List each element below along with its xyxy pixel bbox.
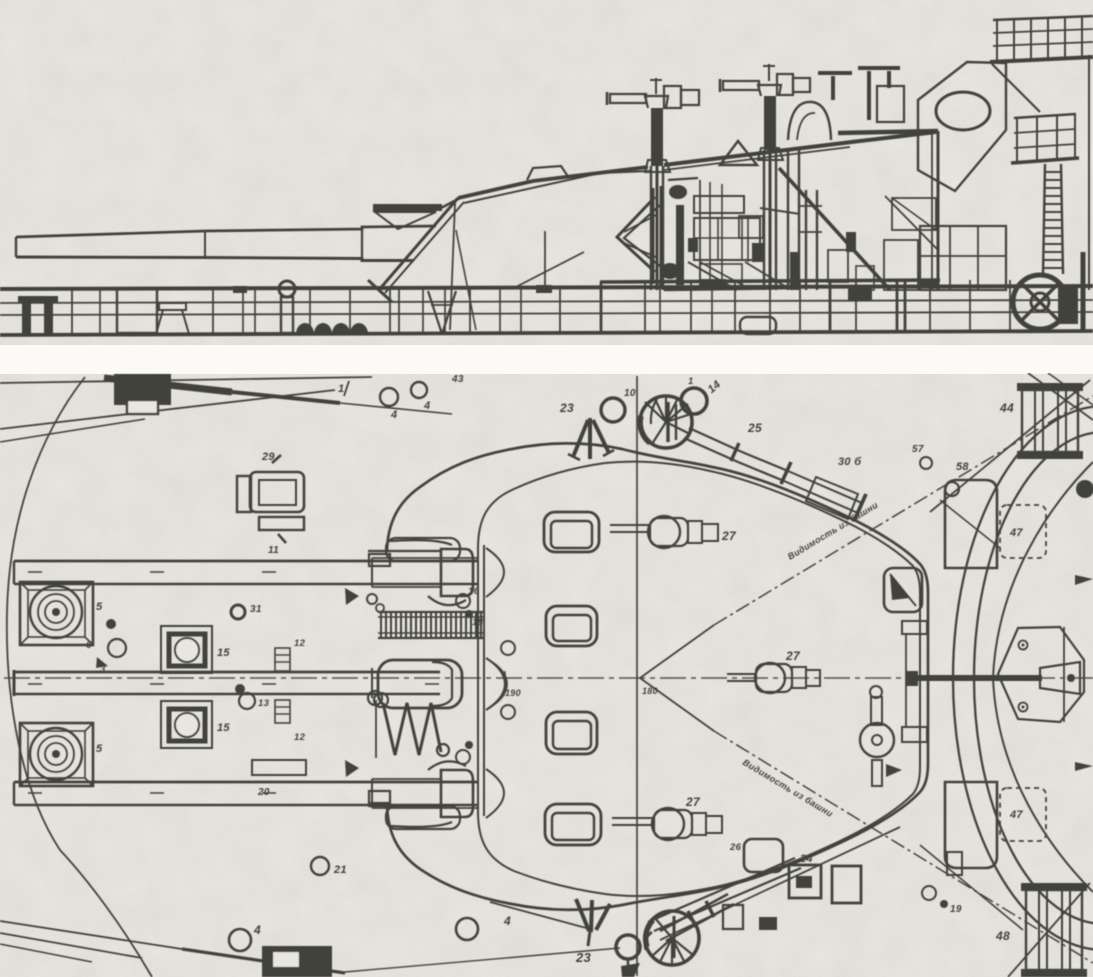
- svg-text:16: 16: [468, 586, 480, 597]
- svg-text:48: 48: [995, 929, 1010, 943]
- svg-text:58: 58: [956, 461, 969, 473]
- svg-text:15: 15: [217, 647, 230, 659]
- svg-text:27: 27: [785, 649, 801, 663]
- svg-text:12: 12: [294, 638, 306, 649]
- svg-text:43: 43: [451, 374, 464, 385]
- svg-text:21: 21: [333, 864, 347, 876]
- svg-text:5: 5: [96, 601, 103, 613]
- svg-text:47: 47: [1009, 527, 1023, 539]
- svg-text:13: 13: [258, 698, 270, 709]
- svg-text:27: 27: [685, 795, 701, 809]
- svg-text:23: 23: [559, 401, 574, 415]
- svg-text:26: 26: [729, 842, 742, 853]
- svg-text:10: 10: [624, 388, 636, 399]
- svg-text:25: 25: [747, 421, 762, 435]
- svg-text:1: 1: [338, 383, 344, 395]
- svg-text:15: 15: [217, 722, 230, 734]
- svg-text:31: 31: [250, 604, 262, 615]
- svg-text:12: 12: [294, 732, 306, 743]
- svg-text:57: 57: [912, 444, 924, 455]
- svg-text:11: 11: [268, 545, 279, 556]
- svg-text:19: 19: [950, 904, 962, 915]
- svg-text:180: 180: [642, 686, 658, 696]
- svg-text:29: 29: [261, 451, 275, 463]
- svg-text:1: 1: [688, 376, 694, 387]
- svg-text:5: 5: [96, 743, 103, 755]
- svg-text:20: 20: [257, 787, 270, 798]
- svg-text:4: 4: [503, 914, 511, 928]
- svg-text:6: 6: [86, 640, 92, 651]
- svg-text:3: 3: [100, 664, 106, 675]
- svg-text:47: 47: [1009, 809, 1023, 821]
- svg-text:4: 4: [390, 409, 397, 421]
- svg-text:18: 18: [472, 617, 484, 628]
- svg-text:4: 4: [253, 923, 261, 937]
- svg-text:44: 44: [999, 401, 1014, 415]
- svg-text:27: 27: [721, 529, 737, 543]
- svg-text:30 б: 30 б: [838, 456, 862, 468]
- svg-text:24: 24: [799, 853, 813, 865]
- svg-text:190: 190: [505, 688, 521, 698]
- svg-text:4: 4: [423, 400, 430, 412]
- svg-text:23: 23: [575, 950, 592, 965]
